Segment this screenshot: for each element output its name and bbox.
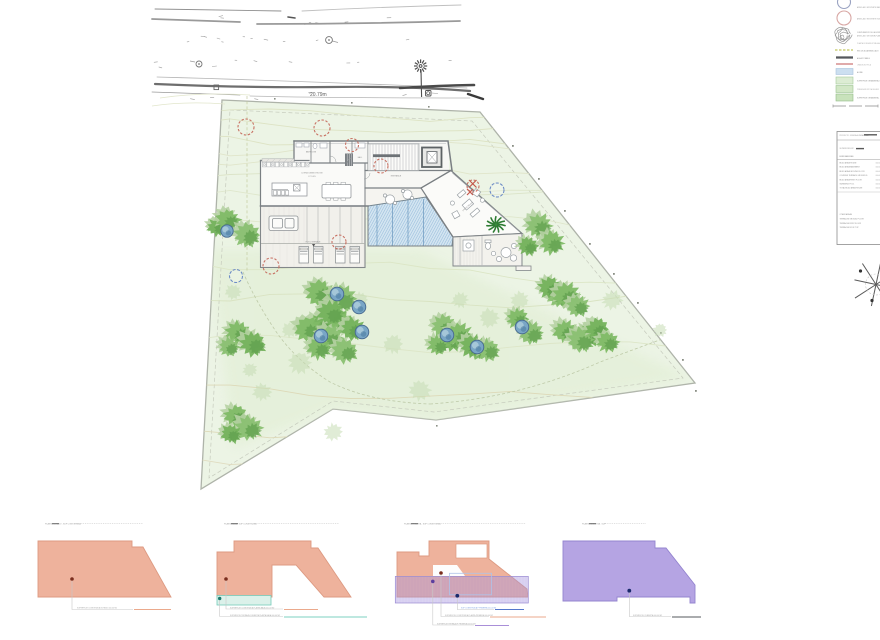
svg-text:TERRACES GROUND FLOOR: TERRACES GROUND FLOOR xyxy=(840,218,865,221)
svg-text:BUILD AREA HOUSE: BUILD AREA HOUSE xyxy=(840,162,858,165)
svg-text:ALJIBE: ALJIBE xyxy=(857,71,864,74)
svg-text:SUPERFICIES M2: SUPERFICIES M2 xyxy=(840,148,854,150)
svg-text:000.00: 000.00 xyxy=(876,179,880,181)
svg-text:SUPERFICIE TERRAZA P PRIMERA 0: SUPERFICIE TERRAZA P PRIMERA 000.00 M2 xyxy=(437,623,476,626)
svg-text:SUPERFICIE ORNAMENTAL: SUPERFICIE ORNAMENTAL xyxy=(857,97,879,100)
svg-text:ARBOLADO DE NUEVA PLANTACION: ARBOLADO DE NUEVA PLANTACION xyxy=(857,35,880,38)
svg-text:SUPERFICIE CONSTRUIDA SOTANO 0: SUPERFICIE CONSTRUIDA SOTANO 000.00 M2 xyxy=(77,607,117,610)
svg-text:TOTAL BUILD AREA HOUSE: TOTAL BUILD AREA HOUSE xyxy=(840,187,864,190)
svg-text:000.00: 000.00 xyxy=(876,188,880,190)
svg-text:ENTRANCE: ENTRANCE xyxy=(391,175,402,178)
svg-text:KITCHEN: KITCHEN xyxy=(308,176,316,178)
svg-text:PLANTA PRIMERA . SUP CONSTRUID: PLANTA PRIMERA . SUP CONSTRUIDA xyxy=(404,523,441,526)
svg-text:BUILD AREA GROUND FLOOR: BUILD AREA GROUND FLOOR xyxy=(840,170,866,173)
svg-text:POOL TERRACE: POOL TERRACE xyxy=(306,241,321,244)
svg-text:BUILD AREA BASEMENT: BUILD AREA BASEMENT xyxy=(840,166,861,169)
svg-text:PLANTA BAJA . SUP CONSTRUIDA: PLANTA BAJA . SUP CONSTRUIDA xyxy=(224,523,257,526)
svg-text:RED DE ALCANTARILLADO: RED DE ALCANTARILLADO xyxy=(857,50,879,53)
svg-text:SUPERFICIE CUBIERTA 000.00 M2: SUPERFICIE CUBIERTA 000.00 M2 xyxy=(633,614,662,617)
svg-text:SUPERFICIE TERRAZA CUBIERTA PL: SUPERFICIE TERRAZA CUBIERTA PLANTA BAJA … xyxy=(230,614,280,617)
svg-text:000.00: 000.00 xyxy=(876,175,880,177)
svg-text:ARBOLADO EXISTENTE ELIMINADO: ARBOLADO EXISTENTE ELIMINADO xyxy=(857,18,880,21)
svg-text:PLANTA SOTANO . SUP CONSTRUIDA: PLANTA SOTANO . SUP CONSTRUIDA xyxy=(45,523,82,526)
svg-text:SWIMMING POOL: SWIMMING POOL xyxy=(840,184,855,186)
svg-text:OTHER AREAS: OTHER AREAS xyxy=(840,213,853,216)
svg-text:000.00: 000.00 xyxy=(876,163,880,165)
svg-text:LIVING DINING ROOM: LIVING DINING ROOM xyxy=(302,173,323,175)
svg-text:EDIFICABILIDAD: EDIFICABILIDAD xyxy=(840,155,855,158)
svg-text:SUP CONSTRUIDA P PRIMERA 000.0: SUP CONSTRUIDA P PRIMERA 000.00 M2 xyxy=(461,607,496,610)
svg-text:BATHROOM: BATHROOM xyxy=(306,151,317,154)
svg-text:TERRACES ROOF TOP: TERRACES ROOF TOP xyxy=(840,226,860,229)
svg-text:SUPERFICIE ORNAMENTAL RIEGO: SUPERFICIE ORNAMENTAL RIEGO xyxy=(857,80,880,83)
svg-text:SUPERFICIE CONSTRUIDA PLANTA B: SUPERFICIE CONSTRUIDA PLANTA BAJA 000.00… xyxy=(230,607,274,610)
svg-text:HALL: HALL xyxy=(358,156,363,159)
svg-text:AGUA POTABLE: AGUA POTABLE xyxy=(857,57,871,60)
svg-text:CUMPLIMIENTO DE LA NORMATIVA: CUMPLIMIENTO DE LA NORMATIVA xyxy=(857,31,880,34)
svg-text:000.00: 000.00 xyxy=(876,184,880,186)
svg-text:COVERED TERRACE GROUND FL: COVERED TERRACE GROUND FL xyxy=(840,174,868,177)
svg-text:000.00: 000.00 xyxy=(876,171,880,173)
svg-text:TERRACES FIRST FLOOR: TERRACES FIRST FLOOR xyxy=(840,222,862,225)
svg-text:000.00: 000.00 xyxy=(876,167,880,169)
svg-text:SUPERFICIE CONSTRUIDA PLANTA P: SUPERFICIE CONSTRUIDA PLANTA PRIMERA 000… xyxy=(445,614,493,617)
svg-text:ARBOLADO EXISTENTE MANTENIDO: ARBOLADO EXISTENTE MANTENIDO xyxy=(857,6,880,9)
svg-text:BUILD AREA FIRST FLOOR: BUILD AREA FIRST FLOOR xyxy=(840,178,863,181)
